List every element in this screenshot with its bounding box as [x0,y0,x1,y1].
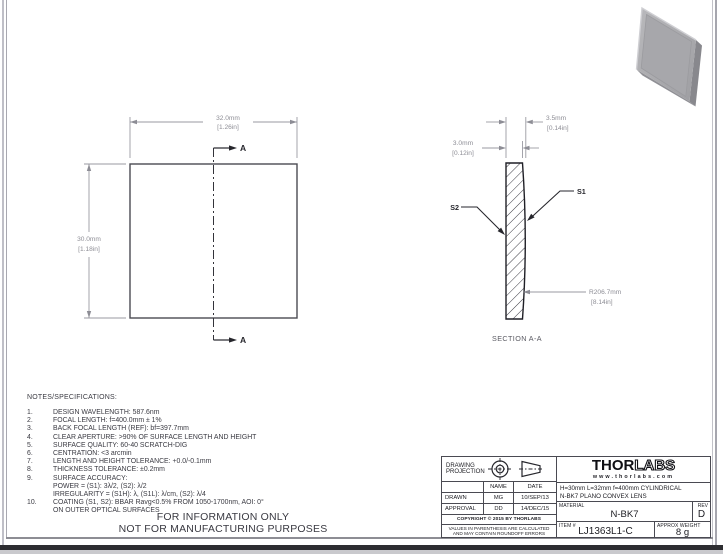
approval-name: DD [484,504,514,514]
rev-value: D [693,509,710,520]
dim-arrow-icon [87,311,91,318]
height-dim-in: [1.18in] [78,246,100,253]
col-date-header: DATE [514,482,556,492]
section-letter-bottom: A [240,335,246,345]
notes-block: NOTES/SPECIFICATIONS: 1.DESIGN WAVELENGT… [27,394,417,516]
section-view: 3.5mm [0.14in] 3.0mm [0.12in] S1 S2 R206… [450,115,622,343]
dim-arrow-icon [499,146,506,150]
logo-labs: LABS [634,457,675,474]
material-value: N-BK7 [557,509,692,520]
note-item: 1.DESIGN WAVELENGTH: 587.6nm [27,409,417,417]
drawn-label: DRAWN [442,493,484,503]
note-item: 5.SURFACE QUALITY: 60-40 SCRATCH-DIG [27,442,417,450]
note-item: 2.FOCAL LENGTH: f=400.0mm ± 1% [27,417,417,425]
thickness-dim-in: [0.14in] [547,125,569,132]
dim-arrow-icon [87,164,91,171]
note-item: 8.THICKNESS TOLERANCE: ±0.2mm [27,466,417,474]
height-dim-mm: 30.0mm [77,236,101,243]
section-letter-top: A [240,143,246,153]
weight-value: 8 g [655,527,710,538]
dim-arrow-icon [290,120,297,124]
info-only-line1: FOR INFORMATION ONLY [118,512,328,524]
notes-heading: NOTES/SPECIFICATIONS: [27,394,417,401]
approval-label: APPROVAL [442,504,484,514]
radius-dim-mm: R206.7mm [589,289,622,296]
note-item: 7.LENGTH AND HEIGHT TOLERANCE: +0.0/-0.1… [27,458,417,466]
title-block-left: DRAWING PROJECTION NAME DATE DRAWN MG 10… [442,457,557,537]
item-row: ITEM # LJ1363L1-C APPROX WEIGHT 8 g [557,522,710,537]
projection-row: DRAWING PROJECTION [442,457,556,482]
lens-section-outline [506,163,525,319]
approval-date: 14/DEC/15 [514,504,556,514]
information-only-notice: FOR INFORMATION ONLY NOT FOR MANUFACTURI… [118,512,328,535]
logo-thor: THOR [592,457,635,474]
title-block: DRAWING PROJECTION NAME DATE DRAWN MG 10… [441,456,711,538]
dim-arrow-icon [526,120,533,124]
rev-cell: REV D [693,502,710,521]
approval-row: APPROVAL DD 14/DEC/15 [442,504,556,515]
item-cell: ITEM # LJ1363L1-C [557,522,655,537]
weight-cell: APPROX WEIGHT 8 g [655,522,710,537]
note-item: POWER = (S1): 3λ/2, (S2): λ/2 [27,483,417,491]
surface-s2-label: S2 [450,203,459,212]
drawn-row: DRAWN MG 10/SEP/13 [442,493,556,504]
section-arrow-bottom-icon [229,337,237,342]
title-block-right: THORLABS www.thorlabs.com H=30mm L=32mm … [557,457,710,537]
thorlabs-logo: THORLABS www.thorlabs.com [557,457,710,483]
surface-s1-label: S1 [577,187,586,196]
part-description: H=30mm L=32mm f=400mm CYLINDRICAL N-BK7 … [557,483,710,502]
front-view: A A 32.0mm [1.26in] 30.0mm [1.18in] [77,115,297,345]
width-dim-mm: 32.0mm [216,115,240,122]
thickness-dim-mm: 3.5mm [546,115,567,122]
note-item: IRREGULARITY = (S1H): λ, (S1L): λ/cm, (S… [27,491,417,499]
dim-arrow-icon [130,120,137,124]
drawn-date: 10/SEP/13 [514,493,556,503]
note-item: 9.SURFACE ACCURACY: [27,475,417,483]
section-arrow-top-icon [229,145,237,150]
edge-dim-in: [0.12in] [452,150,474,157]
disclaimer: VALUES IN PARENTHESIS ARE CALCULATED AND… [442,525,556,537]
website-url: www.thorlabs.com [593,474,674,480]
copyright: COPYRIGHT © 2015 BY THORLABS [442,515,556,525]
note-item: 3.BACK FOCAL LENGTH (REF): bf=397.7mm [27,425,417,433]
width-dim-in: [1.26in] [217,124,239,131]
material-row: MATERIAL N-BK7 REV D [557,502,710,522]
sig-header-row: NAME DATE [442,482,556,493]
dim-arrow-icon [499,120,506,124]
note-item: 4.CLEAR APERTURE: >90% OF SURFACE LENGTH… [27,434,417,442]
note-item: 10.COATING (S1, S2): BBAR Ravg<0.5% FROM… [27,499,417,507]
section-caption: SECTION A-A [492,334,542,343]
lens-3d-render [637,8,703,107]
radius-dim-in: [8.14in] [591,299,613,306]
material-cell: MATERIAL N-BK7 [557,502,693,521]
third-angle-projection-icon [484,457,548,481]
drawn-name: MG [484,493,514,503]
projection-label: DRAWING PROJECTION [446,463,484,476]
edge-dim-mm: 3.0mm [453,140,474,147]
col-name-header: NAME [484,482,514,492]
info-only-line2: NOT FOR MANUFACTURING PURPOSES [118,524,328,536]
note-item: 6.CENTRATION: <3 arcmin [27,450,417,458]
item-number: LJ1363L1-C [557,526,654,537]
